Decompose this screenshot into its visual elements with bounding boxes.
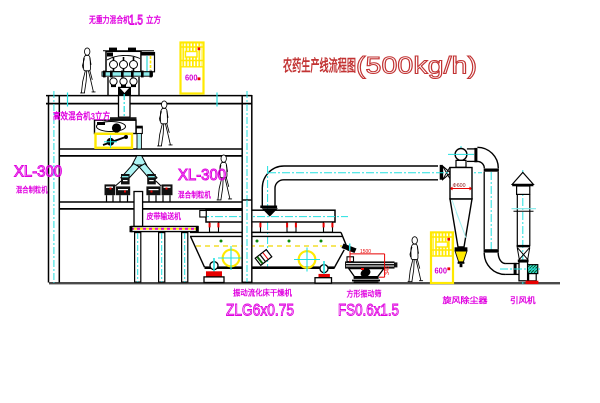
svg-text:混合制粒机: 混合制粒机: [178, 190, 211, 200]
svg-text:旋风除尘器: 旋风除尘器: [441, 295, 488, 305]
svg-text:(500kg/h): (500kg/h): [356, 53, 477, 80]
svg-text:皮带输送机: 皮带输送机: [146, 211, 181, 221]
svg-text:ZLG6x0.75: ZLG6x0.75: [226, 302, 294, 320]
svg-text:无重力混合机: 无重力混合机: [88, 14, 130, 25]
svg-text:引风机: 引风机: [510, 295, 536, 305]
svg-text:FS0.6x1.5: FS0.6x1.5: [338, 302, 399, 320]
svg-text:600: 600: [435, 266, 448, 276]
svg-text:XL-300: XL-300: [14, 164, 62, 181]
svg-text:1.5: 1.5: [129, 13, 143, 28]
svg-text:高效混合机3立方: 高效混合机3立方: [53, 111, 110, 123]
svg-text:立方: 立方: [146, 14, 161, 25]
svg-text:600: 600: [185, 73, 198, 83]
svg-text:农药生产线流程图: 农药生产线流程图: [282, 56, 356, 75]
svg-text:振动流化床干燥机: 振动流化床干燥机: [233, 288, 292, 298]
svg-text:1500: 1500: [360, 249, 371, 255]
svg-text:方形振动筛: 方形振动筛: [347, 289, 382, 299]
svg-text:混合制粒机: 混合制粒机: [16, 185, 48, 195]
svg-text:345: 345: [385, 266, 391, 275]
svg-text:Φ600: Φ600: [453, 183, 466, 189]
svg-text:XL-300: XL-300: [178, 167, 226, 184]
